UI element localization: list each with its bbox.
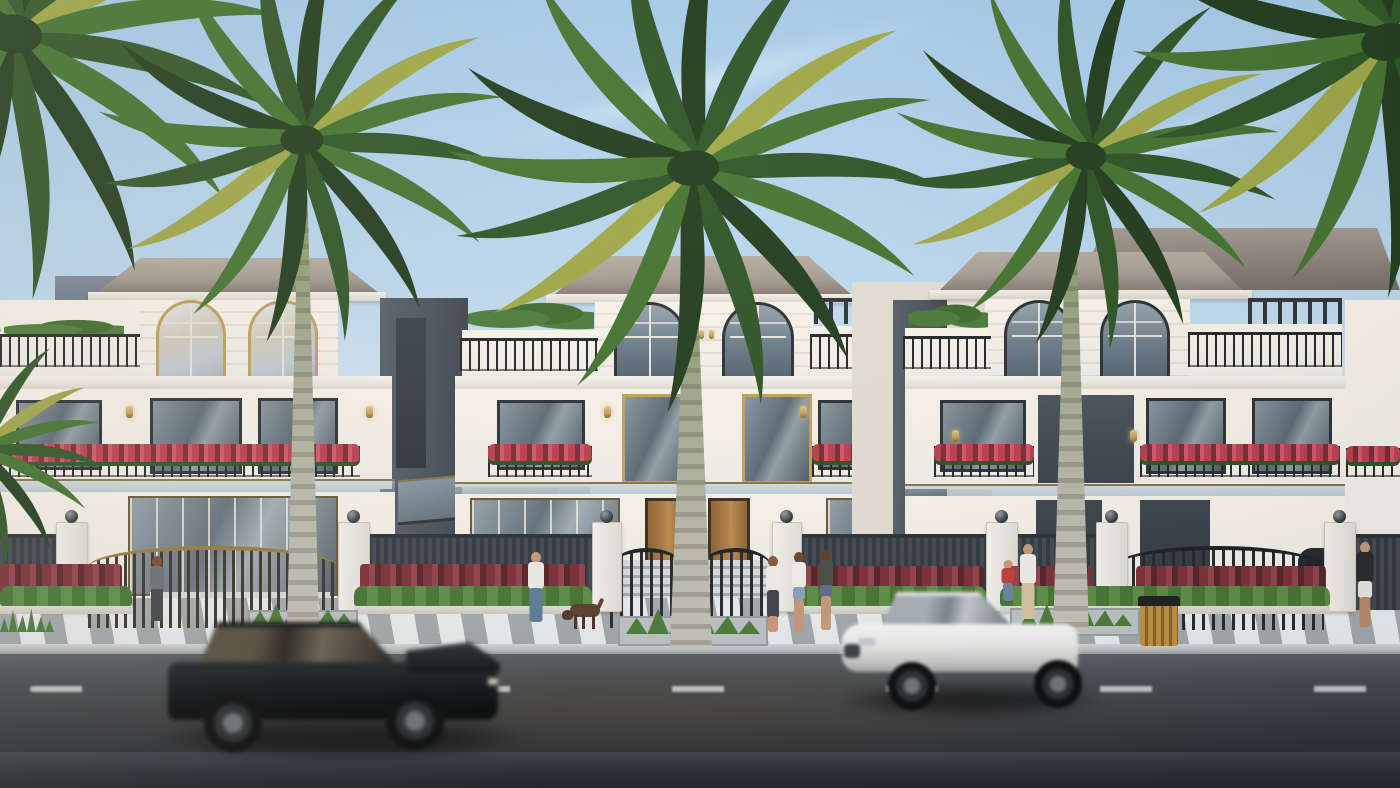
black-car (168, 622, 500, 752)
terrace-vines (908, 302, 988, 332)
trash-bin (1140, 602, 1178, 646)
center-villa-arch-window (614, 302, 686, 378)
right-villa-fascia (930, 290, 1252, 299)
pillar-lamp (780, 510, 793, 523)
pillar-lamp (347, 510, 360, 523)
wall-sconce (699, 330, 704, 339)
trash-bin-lid (1138, 596, 1180, 606)
right-villa-arch-window (1100, 300, 1170, 379)
wall-sconce (126, 406, 133, 418)
right-villa-roof (938, 252, 1244, 292)
left-villa-roof (95, 258, 380, 294)
pillar-lamp (1105, 510, 1118, 523)
terrace-railing (460, 338, 598, 371)
green-shrubs (0, 586, 132, 606)
pillar-lamp (995, 510, 1008, 523)
woman-group-1 (764, 556, 782, 640)
woman-group-2 (790, 552, 808, 640)
woman-near-left-gate (148, 556, 166, 626)
man-in-black-tshirt (1354, 542, 1375, 638)
terrace-railing (1188, 332, 1342, 367)
terrace-pergola (1248, 298, 1342, 324)
balcony-flowers (934, 444, 1034, 461)
wall-sconce (604, 406, 611, 418)
right-villa-recessed-window (1038, 395, 1134, 483)
road-foreground (0, 752, 1400, 788)
left-villa-arch-window (156, 300, 226, 382)
pillar-lamp (600, 510, 613, 523)
edge-balcony-flowers (1346, 446, 1400, 462)
terrace-vines (468, 300, 594, 334)
center-villa-arch-window (722, 302, 794, 378)
green-shrubs (354, 586, 592, 606)
street-scene (0, 0, 1400, 788)
panel-window (396, 318, 426, 468)
wall-sconce (1130, 430, 1137, 442)
woman-group-3 (817, 550, 835, 640)
wall-sconce (709, 330, 714, 339)
wall-sconce (800, 406, 807, 418)
terrace-railing (903, 336, 991, 369)
pillar-lamp (65, 510, 78, 523)
man-walking-dog (526, 552, 546, 628)
right-villa-cornice (905, 376, 1345, 389)
center-villa-roof (553, 256, 853, 296)
balcony-flowers (1140, 444, 1340, 461)
wall-sconce (366, 406, 373, 418)
white-car (842, 592, 1080, 708)
brown-dog (562, 598, 606, 632)
left-wing-railing (0, 334, 140, 367)
balcony-flowers (488, 444, 592, 461)
wall-sconce (952, 430, 959, 442)
pillar-lamp (1333, 510, 1346, 523)
left-villa-cornice (0, 376, 392, 389)
